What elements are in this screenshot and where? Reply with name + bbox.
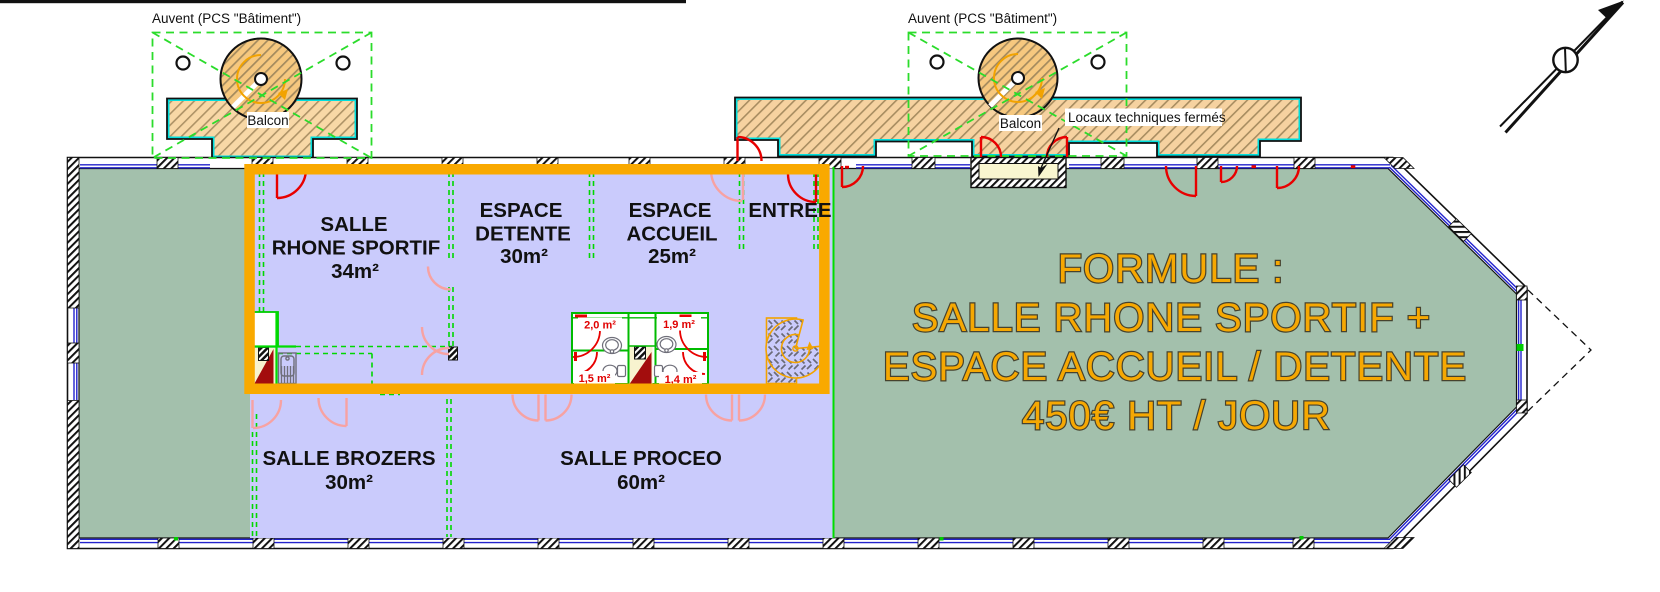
svg-text:2,0 m²: 2,0 m² xyxy=(584,320,616,332)
svg-text:ESPACE: ESPACE xyxy=(480,199,563,222)
svg-text:FORMULE :: FORMULE : xyxy=(1058,247,1285,291)
svg-text:Balcon: Balcon xyxy=(1000,116,1041,131)
svg-text:1,5 m²: 1,5 m² xyxy=(579,373,611,385)
svg-text:450€ HT / JOUR: 450€ HT / JOUR xyxy=(1022,394,1331,438)
svg-text:Auvent (PCS "Bâtiment"): Auvent (PCS "Bâtiment") xyxy=(152,11,301,26)
svg-text:RHONE SPORTIF: RHONE SPORTIF xyxy=(272,237,441,260)
svg-text:ESPACE: ESPACE xyxy=(629,199,712,222)
svg-text:ACCUEIL: ACCUEIL xyxy=(626,223,717,246)
svg-text:Balcon: Balcon xyxy=(247,113,288,128)
svg-text:SALLE: SALLE xyxy=(320,213,387,236)
svg-text:DETENTE: DETENTE xyxy=(475,223,571,246)
svg-text:1,9 m²: 1,9 m² xyxy=(663,319,695,331)
svg-text:25m²: 25m² xyxy=(648,245,696,268)
svg-text:30m²: 30m² xyxy=(500,245,548,268)
svg-text:SALLE RHONE SPORTIF +: SALLE RHONE SPORTIF + xyxy=(912,296,1431,340)
svg-text:ENTREE: ENTREE xyxy=(748,199,831,222)
svg-text:60m²: 60m² xyxy=(617,471,665,494)
svg-text:ESPACE ACCUEIL / DETENTE: ESPACE ACCUEIL / DETENTE xyxy=(883,345,1467,389)
svg-text:Auvent (PCS "Bâtiment"): Auvent (PCS "Bâtiment") xyxy=(908,11,1057,26)
svg-text:SALLE BROZERS: SALLE BROZERS xyxy=(262,447,435,470)
svg-text:SALLE PROCEO: SALLE PROCEO xyxy=(560,447,722,470)
svg-text:Locaux techniques fermés: Locaux techniques fermés xyxy=(1068,110,1226,125)
svg-text:34m²: 34m² xyxy=(331,260,379,283)
svg-text:30m²: 30m² xyxy=(325,471,373,494)
